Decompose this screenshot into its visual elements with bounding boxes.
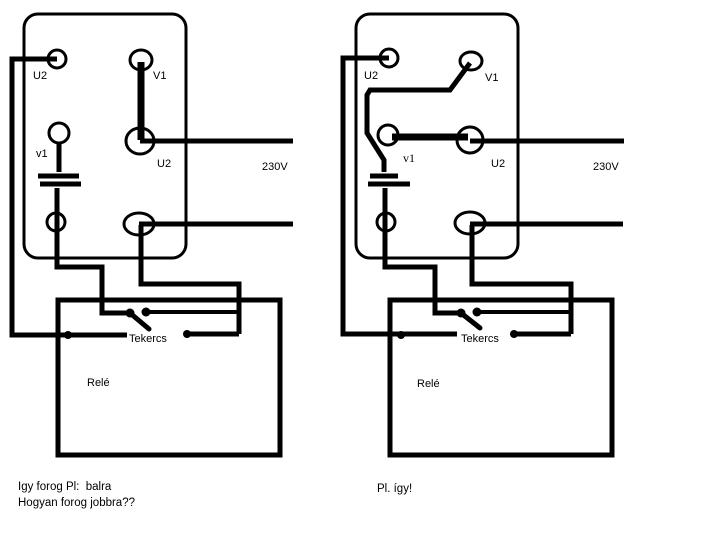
caption-left-line1: Igy forog Pl: balra (18, 481, 112, 493)
left-label-supply: 230V (262, 161, 288, 173)
left-coil-terminal-dot (64, 331, 72, 339)
right-label-u2-mid: U2 (491, 158, 505, 170)
right-label-u2-top: U2 (364, 70, 378, 82)
right-wire-capacitor-to-switch (385, 188, 458, 313)
right-diagram: U2 V1 v1 U2 230V Tekercs Relé (343, 14, 624, 455)
caption-right-line1: Pl. így! (377, 483, 412, 495)
left-label-relay: Relé (87, 377, 110, 389)
right-label-supply: 230V (593, 161, 619, 173)
right-label-coil: Tekercs (461, 333, 499, 345)
left-label-coil: Tekercs (129, 333, 167, 345)
right-label-v1-top: V1 (485, 72, 498, 84)
right-label-relay: Relé (417, 378, 440, 390)
left-label-u2-mid: U2 (157, 158, 171, 170)
left-label-v1-mid: v1 (36, 148, 48, 160)
right-coil-terminal-dot (397, 331, 405, 339)
left-coil-right-dot (183, 330, 191, 338)
wiring-diagram-canvas: U2 V1 v1 U2 230V Tekercs Relé (0, 0, 709, 533)
left-label-v1-top: V1 (153, 70, 166, 82)
right-label-v1-mid: v1 (403, 151, 415, 165)
left-diagram: U2 V1 v1 U2 230V Tekercs Relé (12, 14, 293, 455)
motor-relay-schematic: U2 V1 v1 U2 230V Tekercs Relé (0, 0, 709, 533)
left-terminal-v1-mid (49, 123, 69, 143)
right-wire-terminal-to-coil (472, 225, 571, 334)
left-wire-capacitor-to-switch (57, 188, 127, 313)
right-wire-v1-to-capacitor (367, 63, 470, 172)
captions: Igy forog Pl: balra Hogyan forog jobbra?… (18, 481, 412, 509)
right-terminal-v1-top (460, 52, 482, 70)
left-wire-terminal-to-coil (141, 225, 239, 334)
right-coil-right-dot (510, 330, 518, 338)
left-label-u2-top: U2 (33, 70, 47, 82)
right-wire-u2-to-coil (343, 58, 457, 334)
left-wire-u2-to-coil (12, 59, 127, 335)
caption-left-line2: Hogyan forog jobbra?? (18, 497, 135, 509)
